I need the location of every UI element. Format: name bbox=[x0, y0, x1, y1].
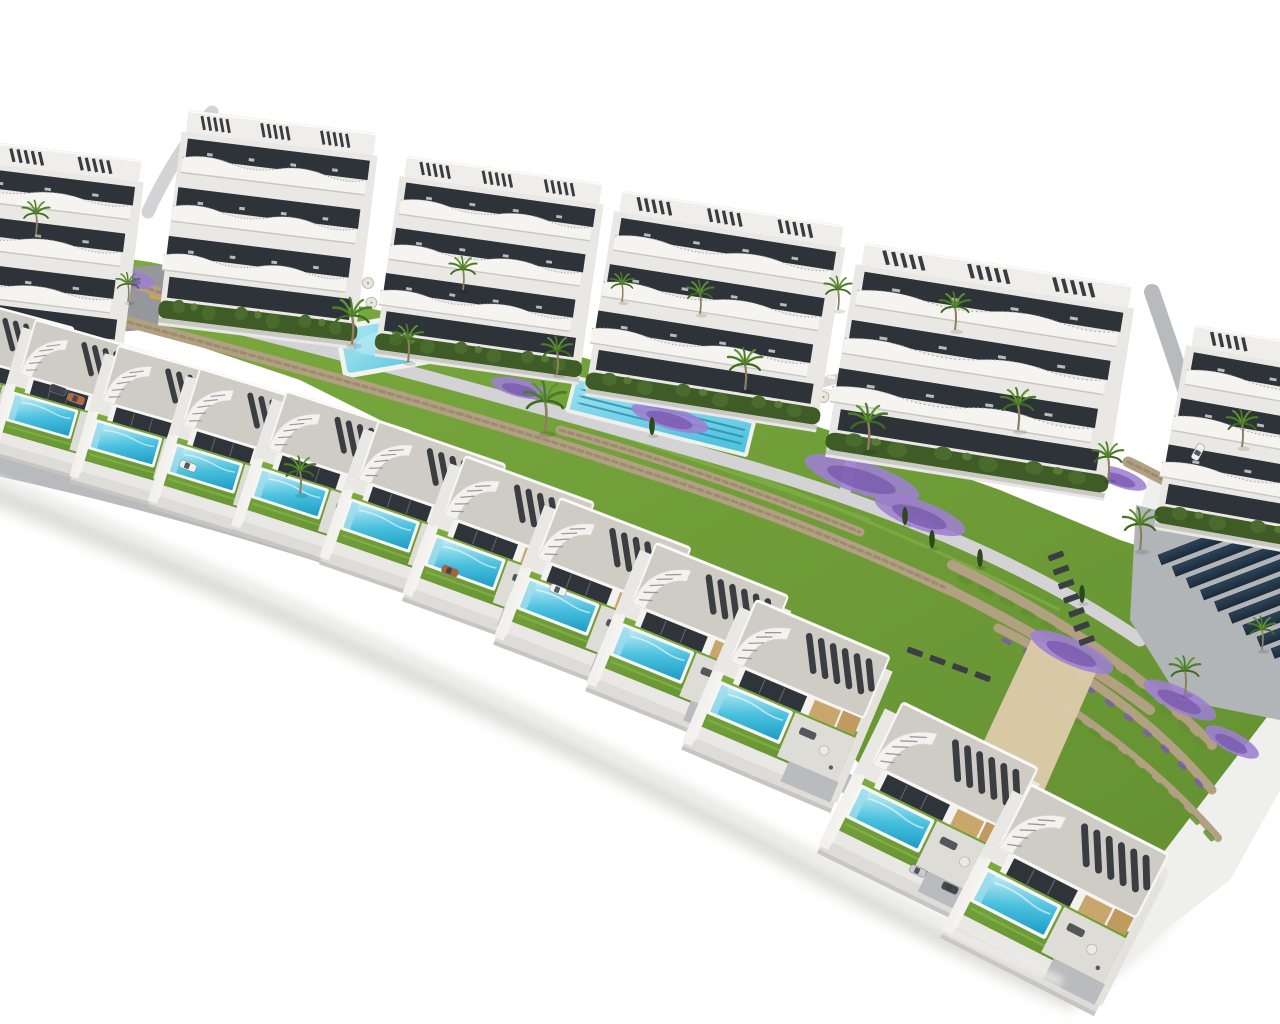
apartment-block-5 bbox=[821, 241, 1139, 501]
apartment-block-3 bbox=[372, 155, 608, 385]
render-canvas bbox=[0, 0, 1280, 1024]
development-aerial-render bbox=[0, 0, 1280, 1024]
apartment-block-4 bbox=[582, 189, 851, 433]
